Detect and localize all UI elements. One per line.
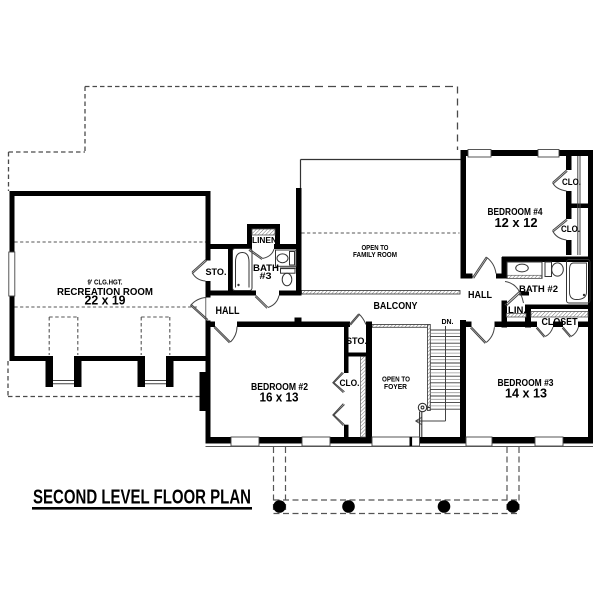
- svg-text:DN.: DN.: [442, 319, 454, 326]
- svg-text:FAMILY ROOM: FAMILY ROOM: [353, 252, 397, 259]
- svg-text:12 x 12: 12 x 12: [495, 215, 538, 230]
- svg-text:HALL: HALL: [468, 289, 492, 301]
- svg-text:FOYER: FOYER: [384, 384, 407, 391]
- svg-text:16 x 13: 16 x 13: [260, 390, 299, 405]
- svg-text:CLOSET: CLOSET: [542, 317, 578, 328]
- svg-text:HALL: HALL: [216, 305, 240, 317]
- svg-text:#3: #3: [260, 271, 272, 282]
- svg-text:CLO.: CLO.: [340, 378, 360, 389]
- svg-text:BALCONY: BALCONY: [374, 300, 418, 312]
- svg-text:OPEN TO: OPEN TO: [382, 377, 410, 384]
- svg-text:OPEN TO: OPEN TO: [362, 245, 389, 252]
- svg-text:STO.: STO.: [346, 336, 367, 347]
- svg-text:CLO.: CLO.: [561, 224, 580, 235]
- svg-text:BATH #2: BATH #2: [519, 284, 558, 295]
- svg-text:SECOND LEVEL FLOOR PLAN: SECOND LEVEL FLOOR PLAN: [33, 486, 251, 509]
- svg-text:LIN.: LIN.: [508, 305, 526, 315]
- svg-text:CLO.: CLO.: [562, 177, 581, 188]
- svg-text:22 x 19: 22 x 19: [85, 293, 126, 308]
- svg-text:LINEN: LINEN: [252, 235, 277, 245]
- svg-text:STO.: STO.: [206, 267, 227, 278]
- svg-text:14 x 13: 14 x 13: [505, 386, 547, 401]
